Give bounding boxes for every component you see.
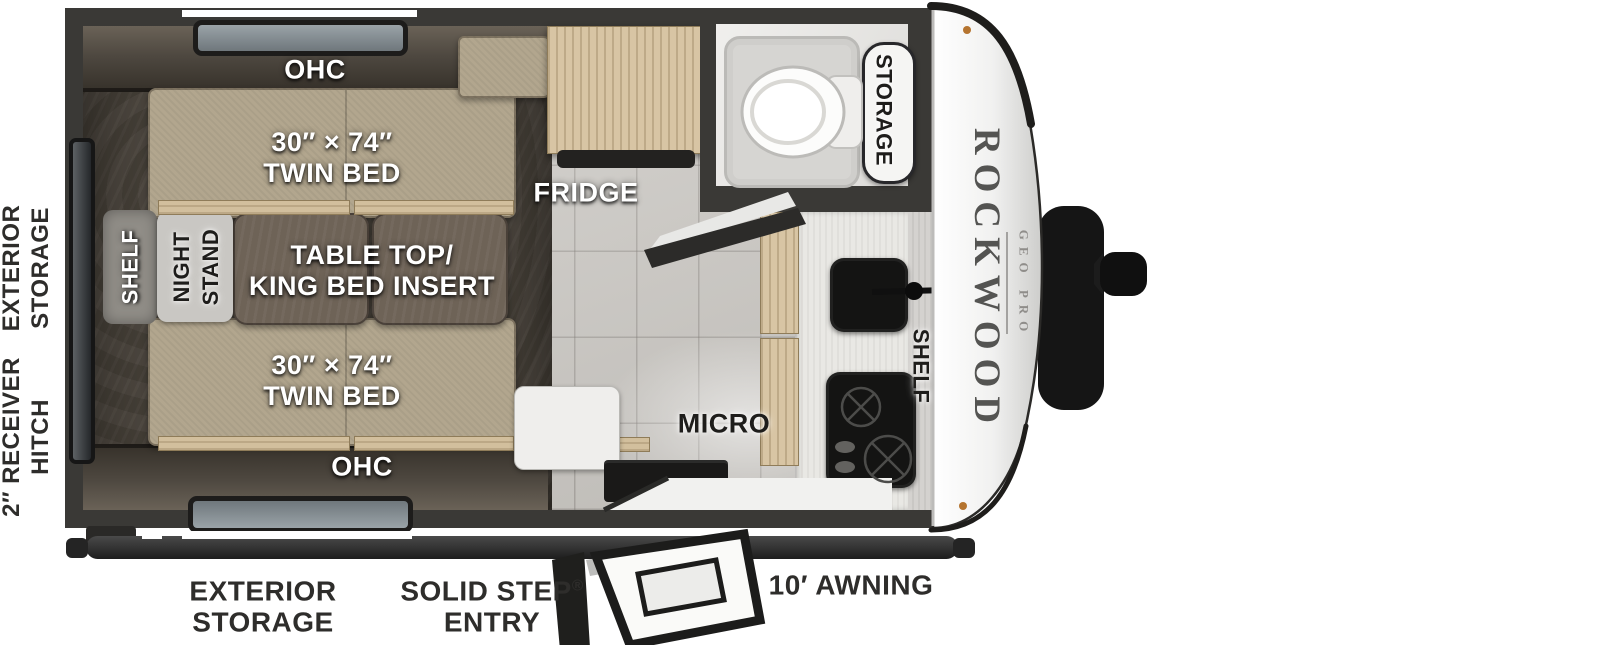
brand-name: ROCKWOOD [965, 128, 1007, 432]
label-bath-storage: STORAGE [869, 54, 898, 166]
label-night-stand: NIGHT STAND [167, 229, 225, 306]
label-exterior-storage-bottom: EXTERIOR STORAGE [189, 576, 336, 639]
label-solid-step-entry: SOLID STEP® ENTRY [400, 576, 583, 639]
label-shelf-kitchen: SHELF [906, 329, 935, 404]
label-ohc-top: OHC [284, 55, 346, 86]
floorplan-canvas: EXTERIOR STORAGE 2″ RECEIVER HITCH OHC 3… [0, 0, 1600, 645]
label-fridge: FRIDGE [533, 178, 638, 209]
label-table-top: TABLE TOP/ KING BED INSERT [249, 240, 495, 302]
label-awning: 10′ AWNING [769, 569, 934, 600]
label-receiver-hitch: 2″ RECEIVER HITCH [0, 357, 56, 517]
brand-model: GEO PRO [1016, 230, 1031, 339]
label-shelf-bedroom: SHELF [115, 230, 144, 305]
label-twin-bed-top: 30″ × 74″ TWIN BED [263, 127, 400, 189]
label-exterior-storage-left: EXTERIOR STORAGE [0, 205, 56, 332]
label-ohc-bottom: OHC [331, 452, 393, 483]
solid-step [0, 0, 1600, 645]
label-twin-bed-bottom: 30″ × 74″ TWIN BED [263, 350, 400, 412]
label-micro: MICRO [678, 409, 771, 440]
